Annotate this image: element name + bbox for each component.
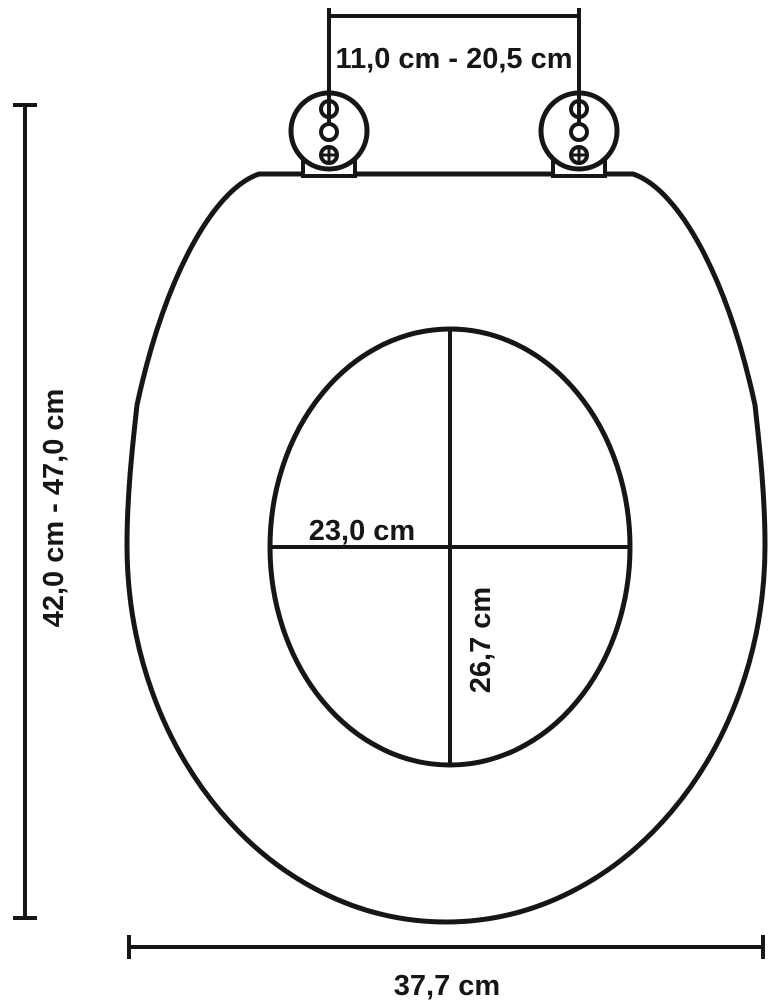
- hinge-spacing-dimension: 11,0 cm - 20,5 cm: [329, 8, 579, 124]
- hinge-hole-middle: [571, 124, 587, 140]
- seat-width-dimension: 37,7 cm: [129, 935, 763, 1002]
- diagram-canvas: 23,0 cm 26,7 cm 11,0 cm - 20,5 cm: [0, 0, 778, 1007]
- toilet-seat-dimension-diagram: 23,0 cm 26,7 cm 11,0 cm - 20,5 cm: [0, 0, 778, 1007]
- hinge-spacing-label: 11,0 cm - 20,5 cm: [336, 43, 573, 75]
- seat-length-label: 42,0 cm - 47,0 cm: [38, 389, 70, 628]
- opening-depth-label: 26,7 cm: [465, 587, 497, 693]
- seat-width-label: 37,7 cm: [394, 970, 500, 1002]
- hinge-hole-middle: [321, 124, 337, 140]
- seat-length-dimension: 42,0 cm - 47,0 cm: [13, 105, 70, 918]
- seat-opening-group: 23,0 cm 26,7 cm: [270, 329, 630, 765]
- opening-width-label: 23,0 cm: [309, 515, 415, 547]
